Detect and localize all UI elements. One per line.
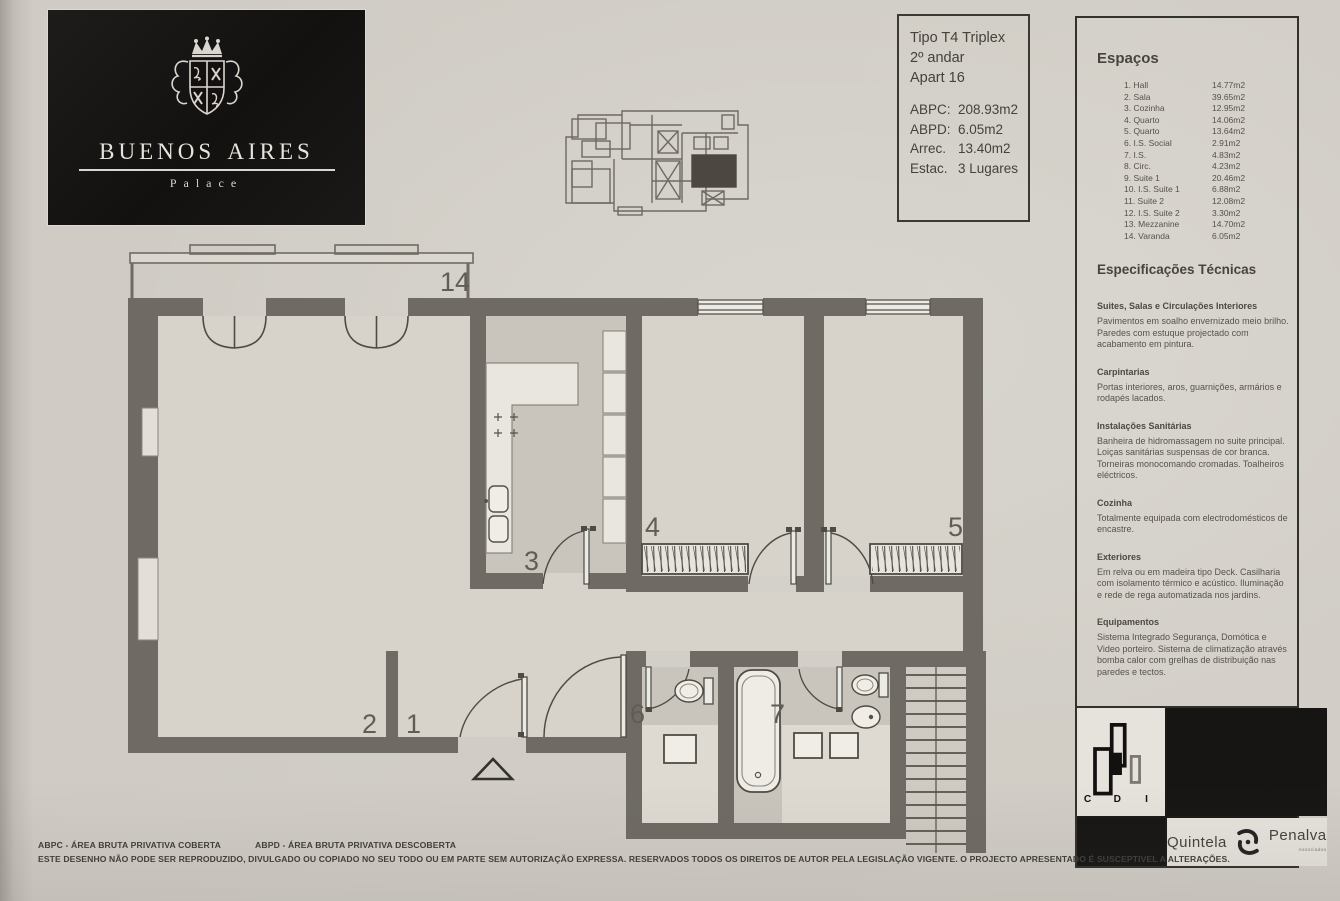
space-name: 10. I.S. Suite 1 [1124, 184, 1212, 196]
spec-section-body: Em relva ou em madeira tipo Deck. Casilh… [1097, 567, 1289, 602]
metric-label: Arrec. [910, 139, 958, 159]
brand-name: Buenos Aires [99, 134, 314, 164]
metric-label: Estac. [910, 159, 958, 179]
room-label-is-social: 6 [630, 699, 645, 729]
unit-metrics: ABPC: 208.93m2 ABPD: 6.05m2 Arrec. 13.40… [910, 100, 1028, 178]
bath6-sink [664, 735, 696, 763]
space-area: 13.64m2 [1212, 126, 1245, 138]
space-name: 13. Mezzanine [1124, 219, 1212, 231]
space-name: 3. Cozinha [1124, 103, 1212, 115]
spec-section-body: Portas interiores, aros, guarnições, arm… [1097, 382, 1289, 405]
space-row: 2. Sala 39.65m2 [1124, 92, 1283, 104]
spec-section-heading: Suites, Salas e Circulações Interiores [1097, 301, 1289, 311]
metric-row: ABPC: 208.93m2 [910, 100, 1028, 120]
penalva-label: Penalva [1269, 829, 1327, 842]
black-cell [1167, 708, 1327, 816]
space-row: 4. Quarto 14.06m2 [1124, 115, 1283, 127]
spec-section-heading: Equipamentos [1097, 617, 1289, 627]
bidet [852, 706, 880, 728]
scanned-floorplan-page: { "brand": { "name": "Buenos Aires", "su… [0, 0, 1340, 901]
space-row: 1. Hall 14.77m2 [1124, 80, 1283, 92]
kitchen-sink [489, 516, 508, 542]
crest-icon [132, 36, 282, 128]
bath7-sink [830, 733, 858, 758]
metric-row: ABPD: 6.05m2 [910, 120, 1028, 140]
brand-divider [79, 169, 335, 171]
legend-abpd: ABPD - ÁREA BRUTA PRIVATIVA DESCOBERTA [255, 840, 456, 850]
unit-info-box: Tipo T4 Triplex 2º andar Apart 16 ABPC: … [897, 14, 1030, 222]
balcony [130, 245, 473, 298]
metric-value: 6.05m2 [958, 120, 1003, 140]
spec-section-heading: Exteriores [1097, 552, 1289, 562]
space-area: 14.70m2 [1212, 219, 1245, 231]
space-area: 20.46m2 [1212, 173, 1245, 185]
space-area: 6.05m2 [1212, 231, 1240, 243]
metric-label: ABPC: [910, 100, 958, 120]
space-row: 14. Varanda 6.05m2 [1124, 231, 1283, 243]
space-name: 5. Quarto [1124, 126, 1212, 138]
space-name: 1. Hall [1124, 80, 1212, 92]
spec-sections: Suites, Salas e Circulações Interiores P… [1097, 301, 1283, 678]
toilet [852, 673, 888, 697]
space-area: 12.95m2 [1212, 103, 1245, 115]
room-label-cozinha: 3 [524, 546, 539, 576]
space-row: 12. I.S. Suite 2 3.30m2 [1124, 208, 1283, 220]
space-row: 8. Circ. 4.23m2 [1124, 161, 1283, 173]
kitchen-sink [489, 486, 508, 512]
space-name: 11. Suite 2 [1124, 196, 1212, 208]
disclaimer-text: ESTE DESENHO NÃO PODE SER REPRODUZIDO, D… [38, 854, 1230, 864]
metric-value: 208.93m2 [958, 100, 1018, 120]
spec-section-body: Totalmente equipada com electrodoméstico… [1097, 513, 1289, 536]
space-name: 6. I.S. Social [1124, 138, 1212, 150]
space-area: 39.65m2 [1212, 92, 1245, 104]
spec-section: Cozinha Totalmente equipada com electrod… [1097, 498, 1289, 536]
space-name: 9. Suite 1 [1124, 173, 1212, 185]
space-row: 7. I.S. 4.83m2 [1124, 150, 1283, 162]
cdi-logo-cell: C D I [1077, 708, 1165, 816]
cdi-logo-icon: C D I [1082, 719, 1160, 805]
space-area: 3.30m2 [1212, 208, 1240, 220]
space-area: 14.06m2 [1212, 115, 1245, 127]
space-name: 8. Circ. [1124, 161, 1212, 173]
svg-text:I: I [1145, 794, 1148, 805]
associados-label: Associados [1299, 843, 1327, 856]
spec-panel: Espaços 1. Hall 14.77m2 2. Sala 39.65m2 … [1075, 16, 1299, 868]
metric-label: ABPD: [910, 120, 958, 140]
space-name: 2. Sala [1124, 92, 1212, 104]
metric-row: Arrec. 13.40m2 [910, 139, 1028, 159]
space-area: 14.77m2 [1212, 80, 1245, 92]
space-row: 9. Suite 1 20.46m2 [1124, 173, 1283, 185]
space-row: 13. Mezzanine 14.70m2 [1124, 219, 1283, 231]
unit-apartment: Apart 16 [910, 68, 1028, 88]
space-name: 12. I.S. Suite 2 [1124, 208, 1212, 220]
building-key-plan [552, 103, 766, 229]
spec-section: Instalações Sanitárias Banheira de hidro… [1097, 421, 1289, 482]
room-label-hall: 1 [406, 709, 421, 739]
spec-section: Exteriores Em relva ou em madeira tipo D… [1097, 552, 1289, 602]
unit-type: Tipo T4 Triplex [910, 28, 1028, 48]
brand-subtitle: Palace [170, 176, 243, 191]
unit-floor: 2º andar [910, 48, 1028, 68]
specs-title: Especificações Técnicas [1097, 262, 1283, 277]
spaces-title: Espaços [1097, 50, 1283, 67]
space-row: 10. I.S. Suite 1 6.88m2 [1124, 184, 1283, 196]
spec-section-body: Pavimentos em soalho envernizado meio br… [1097, 316, 1289, 351]
kitchen-tall-units [603, 331, 626, 543]
room-label-is7: 7 [770, 699, 785, 729]
metric-value: 13.40m2 [958, 139, 1011, 159]
space-name: 4. Quarto [1124, 115, 1212, 127]
entrance-marker [474, 759, 512, 779]
spec-section: Carpintarias Portas interiores, aros, gu… [1097, 367, 1289, 405]
space-area: 2.91m2 [1212, 138, 1240, 150]
bathtub [737, 670, 780, 792]
footer: ABPC - ÁREA BRUTA PRIVATIVA COBERTA ABPD… [38, 840, 1230, 864]
room-label-quarto4: 4 [645, 512, 660, 542]
space-row: 6. I.S. Social 2.91m2 [1124, 138, 1283, 150]
spec-section-heading: Carpintarias [1097, 367, 1289, 377]
legend-abpc: ABPC - ÁREA BRUTA PRIVATIVA COBERTA [38, 840, 221, 850]
floor-plan: 14 1 2 3 4 5 6 7 [118, 243, 1002, 857]
room-label-sala: 2 [362, 709, 377, 739]
spec-section-heading: Instalações Sanitárias [1097, 421, 1289, 431]
spec-section-body: Banheira de hidromassagem no suite princ… [1097, 436, 1289, 482]
room-label-balcony: 14 [440, 267, 470, 297]
metric-row: Estac. 3 Lugares [910, 159, 1028, 179]
space-area: 4.23m2 [1212, 161, 1240, 173]
space-row: 3. Cozinha 12.95m2 [1124, 103, 1283, 115]
brand-logo-box: Buenos Aires Palace [48, 10, 365, 225]
spec-section-body: Sistema Integrado Segurança, Domótica e … [1097, 632, 1289, 678]
svg-text:C: C [1084, 794, 1092, 805]
space-name: 7. I.S. [1124, 150, 1212, 162]
metric-value: 3 Lugares [958, 159, 1018, 179]
spaces-list: 1. Hall 14.77m2 2. Sala 39.65m2 3. Cozin… [1124, 80, 1283, 242]
spec-section: Equipamentos Sistema Integrado Segurança… [1097, 617, 1289, 678]
space-row: 5. Quarto 13.64m2 [1124, 126, 1283, 138]
space-name: 14. Varanda [1124, 231, 1212, 243]
room-label-quarto5: 5 [948, 512, 963, 542]
space-area: 6.88m2 [1212, 184, 1240, 196]
spec-section: Suites, Salas e Circulações Interiores P… [1097, 301, 1289, 351]
toilet [675, 678, 713, 704]
quintela-penalva-icon [1233, 827, 1263, 857]
space-row: 11. Suite 2 12.08m2 [1124, 196, 1283, 208]
bath7-sink [794, 733, 822, 758]
spec-section-heading: Cozinha [1097, 498, 1289, 508]
svg-text:D: D [1114, 794, 1121, 805]
space-area: 4.83m2 [1212, 150, 1240, 162]
space-area: 12.08m2 [1212, 196, 1245, 208]
